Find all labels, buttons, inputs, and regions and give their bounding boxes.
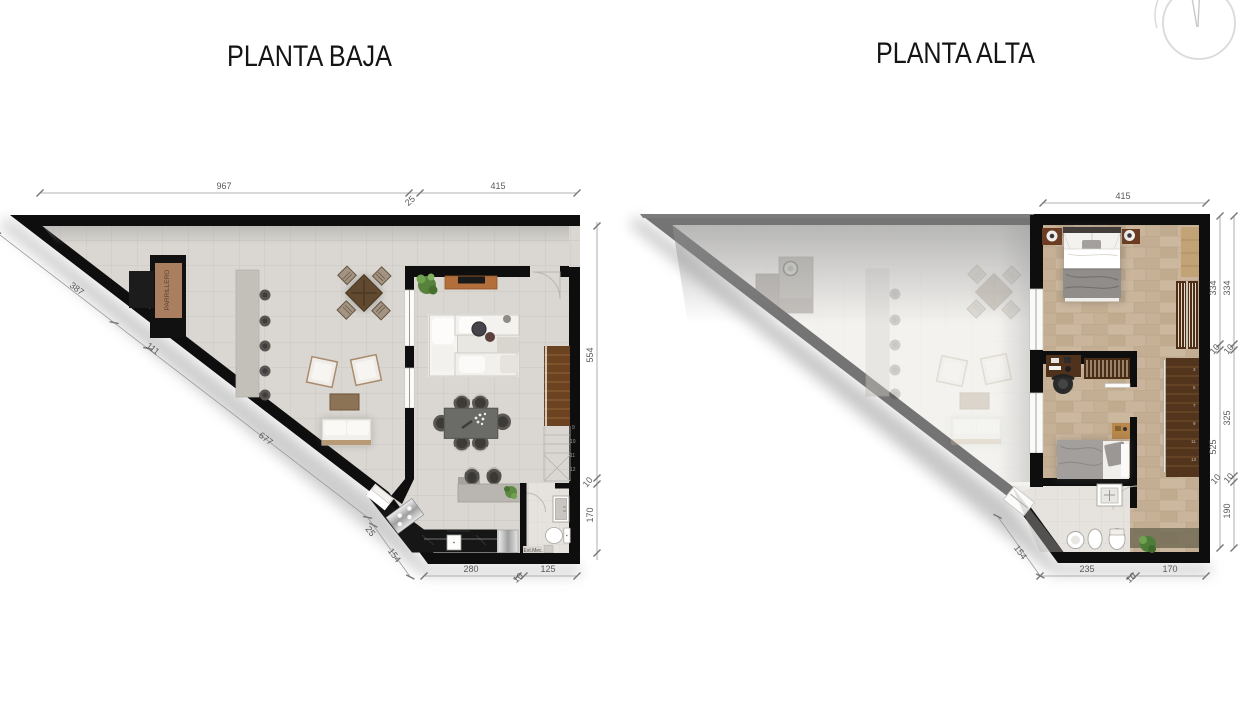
svg-text:170: 170 (1162, 564, 1177, 574)
svg-text:11: 11 (1191, 439, 1196, 444)
svg-text:125: 125 (540, 564, 555, 574)
svg-text:13: 13 (1191, 457, 1197, 462)
svg-text:170: 170 (585, 507, 595, 522)
svg-text:Ext.Mec.: Ext.Mec. (524, 548, 543, 554)
svg-text:415: 415 (490, 181, 505, 191)
svg-text:334: 334 (1208, 280, 1218, 295)
svg-text:10: 10 (570, 439, 576, 445)
svg-text:325: 325 (1222, 410, 1232, 425)
svg-text:235: 235 (1079, 564, 1094, 574)
svg-text:10: 10 (1209, 472, 1223, 486)
svg-text:9: 9 (572, 425, 575, 431)
svg-text:10: 10 (581, 475, 595, 489)
svg-text:415: 415 (1115, 191, 1130, 201)
svg-text:PLANTA ALTA: PLANTA ALTA (876, 37, 1035, 70)
svg-text:12: 12 (570, 467, 576, 473)
svg-text:967: 967 (216, 181, 231, 191)
svg-text:PARRILLERO: PARRILLERO (164, 270, 171, 311)
svg-text:334: 334 (1222, 280, 1232, 295)
svg-text:554: 554 (585, 347, 595, 362)
svg-text:PLANTA BAJA: PLANTA BAJA (227, 40, 392, 73)
svg-text:525: 525 (1208, 439, 1218, 454)
svg-text:25: 25 (403, 194, 417, 208)
svg-text:190: 190 (1222, 503, 1232, 518)
svg-text:280: 280 (463, 564, 478, 574)
svg-text:11: 11 (570, 453, 575, 459)
